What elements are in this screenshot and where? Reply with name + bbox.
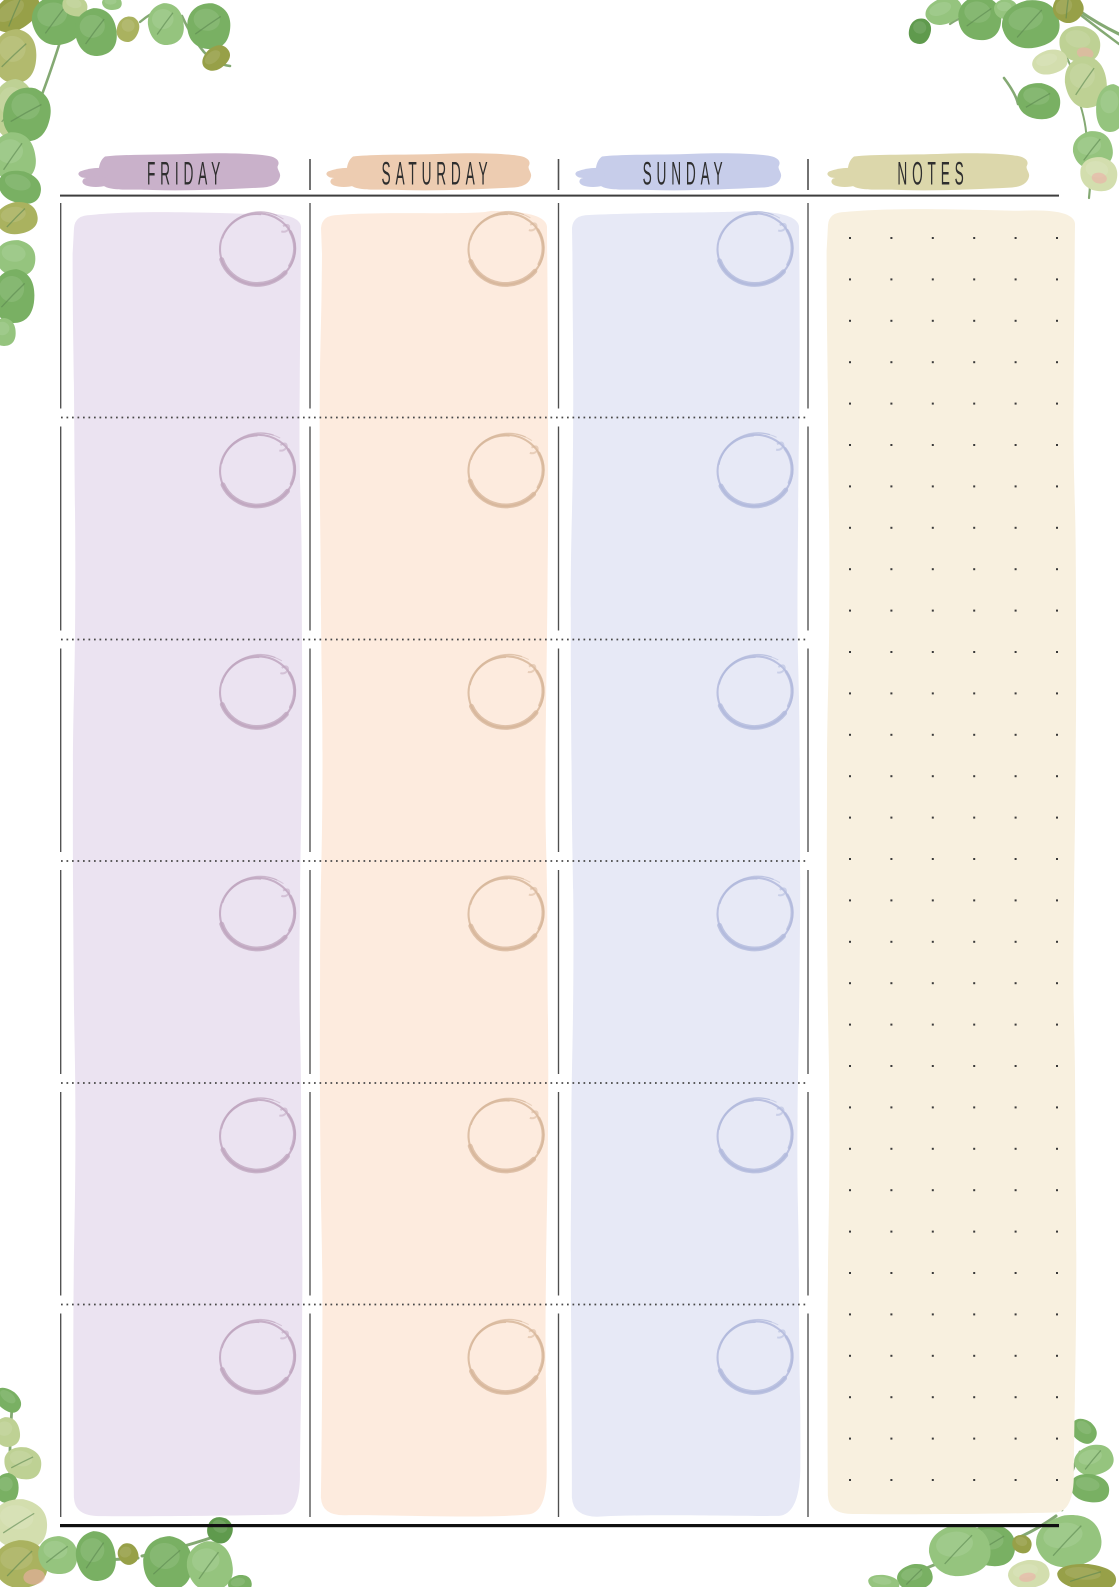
svg-text:SATURDAY: SATURDAY bbox=[382, 156, 493, 193]
svg-text:SUNDAY: SUNDAY bbox=[643, 156, 728, 193]
svg-text:FRIDAY: FRIDAY bbox=[147, 156, 225, 193]
svg-text:NOTES: NOTES bbox=[897, 156, 968, 193]
